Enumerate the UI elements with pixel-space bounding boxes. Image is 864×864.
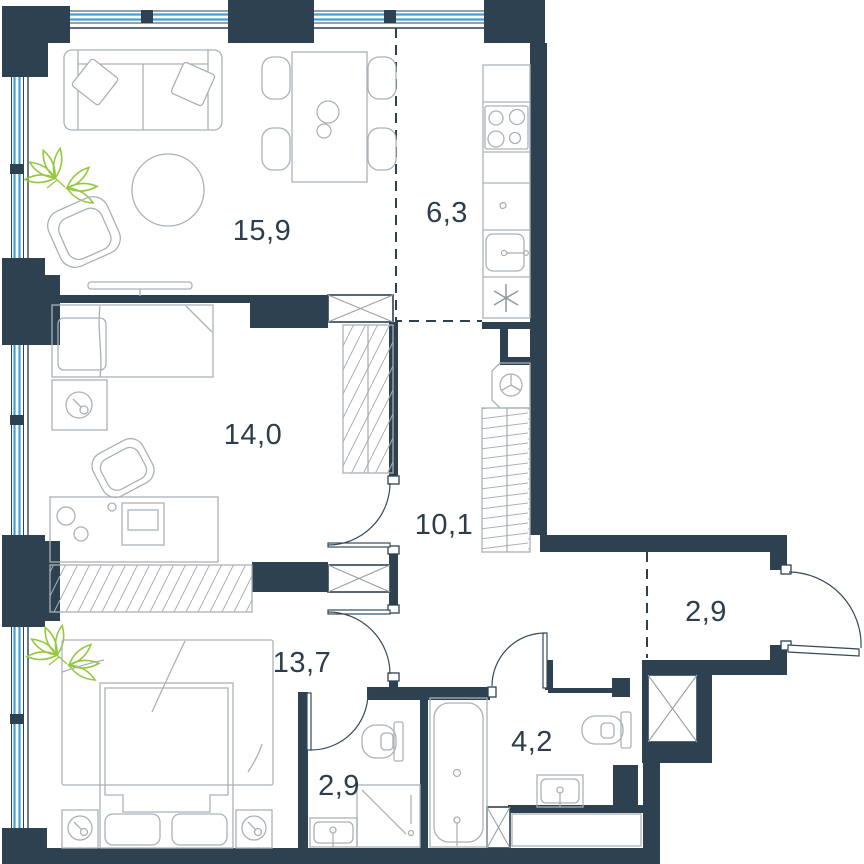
vent-shaft [648,675,697,742]
room-label-living-dining: 15,9 [233,215,291,247]
living-room-furniture [25,50,396,296]
vent-shaft [487,807,510,848]
room-label-kitchen: 6,3 [426,197,468,229]
fridge-snowflake-icon [494,284,518,312]
tv-console [88,282,192,296]
kitchen-zone-boundary [396,28,482,321]
chair [262,128,290,170]
window-mullion [10,415,24,425]
nightstand [236,810,272,848]
plant [25,148,98,206]
floor-plan: 15,9 6,3 14,0 10,1 2,9 13,7 2,9 4,2 [0,0,864,864]
room-label-bedroom: 14,0 [224,419,282,451]
corridor-fixtures [482,363,530,552]
room-label-entrance-hall: 2,9 [685,596,727,628]
toilet [582,712,631,748]
door-bathroom [488,633,547,697]
single-bed [52,305,213,377]
room-label-master-bedroom: 13,7 [273,647,331,679]
window-mullion [10,164,24,174]
wardrobe [50,565,252,612]
window-mullion [384,10,396,23]
door-master-bedroom [328,605,399,681]
door-bedroom [328,476,399,554]
entrance-door [781,565,861,656]
kitchen-fixtures [483,65,530,318]
chair [368,57,396,99]
door-shower-room [307,693,368,750]
room-label-corridor: 10,1 [415,509,473,541]
vent-shaft [328,295,393,322]
master-bedroom-furniture [27,625,273,848]
desk-chair [87,434,159,503]
chair [262,57,290,99]
pillow [172,814,227,845]
toilet [362,722,403,761]
kitchen-counter [483,65,530,318]
sofa [64,50,222,130]
doors [307,476,861,750]
pillow [105,814,160,845]
bathroom-fixtures [430,698,631,847]
nightstand [62,810,98,848]
sink [310,818,357,847]
dining-table [262,52,396,182]
counter-item [500,203,506,209]
room-label-shower-room: 2,9 [318,770,360,802]
vent-shaft [328,565,390,592]
window-mullion [10,714,24,724]
room-label-bathroom: 4,2 [511,726,553,758]
stove [485,106,528,149]
wardrobe [343,325,393,473]
round-rug [132,154,204,226]
wall-pillar [2,6,70,77]
plant [27,625,100,683]
armchair [43,192,126,273]
chair [368,128,396,170]
sink [537,775,583,807]
double-bed [100,683,233,848]
coat-rack [482,408,530,552]
kitchen-sink [486,234,528,271]
window-mullion [141,10,153,23]
washing-machine [492,363,530,408]
bathtub [430,698,487,847]
floor-plan-svg: 15,9 6,3 14,0 10,1 2,9 13,7 2,9 4,2 [0,0,864,864]
duct-niche [512,814,641,846]
shower [357,785,420,847]
nightstand [52,380,107,430]
rug [62,640,273,785]
desk [50,497,218,562]
